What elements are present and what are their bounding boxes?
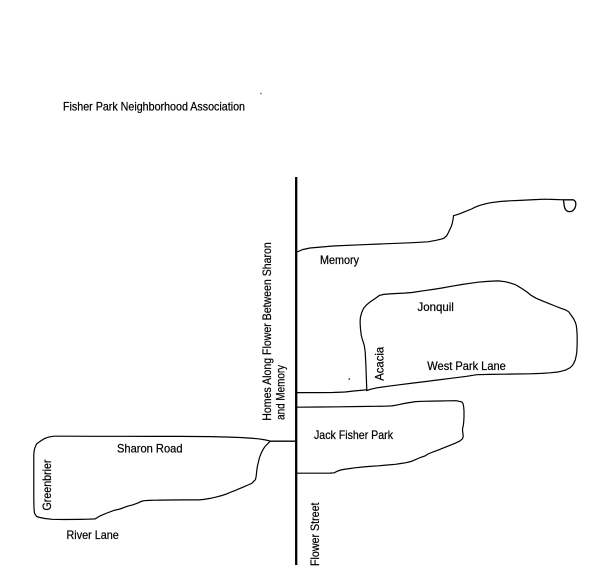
svg-text:and Memory: and Memory (274, 365, 288, 420)
svg-text:Jack Fisher Park: Jack Fisher Park (314, 428, 394, 442)
svg-text:Fisher Park Neighborhood Assoc: Fisher Park Neighborhood Association (63, 99, 245, 113)
svg-text:Acacia: Acacia (372, 347, 386, 381)
svg-text:Flower Street: Flower Street (308, 502, 322, 566)
svg-text:Memory: Memory (320, 253, 359, 267)
svg-text:Jonquil: Jonquil (418, 300, 454, 314)
svg-text:River Lane: River Lane (67, 528, 120, 542)
svg-text:West Park Lane: West Park Lane (427, 359, 506, 373)
svg-text:Sharon Road: Sharon Road (117, 441, 183, 455)
svg-text:Greenbrier: Greenbrier (40, 459, 54, 510)
svg-text:Homes Along Flower Between Sha: Homes Along Flower Between Sharon (260, 242, 274, 421)
